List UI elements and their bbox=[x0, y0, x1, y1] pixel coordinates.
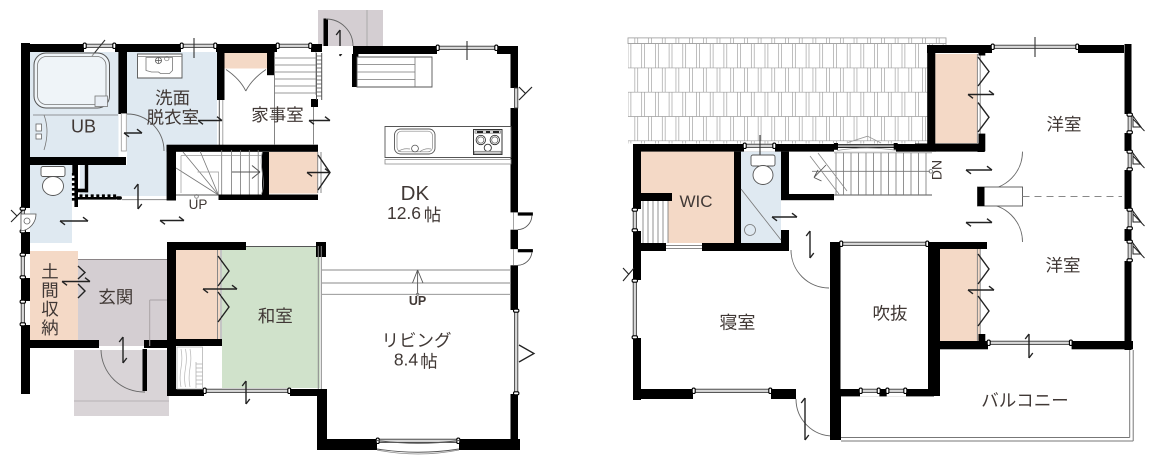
svg-text:UP: UP bbox=[189, 197, 208, 212]
svg-text:DN: DN bbox=[929, 160, 945, 180]
svg-text:8.4: 8.4 bbox=[394, 350, 419, 370]
svg-text:WIC: WIC bbox=[679, 192, 712, 211]
svg-text:UB: UB bbox=[71, 116, 96, 136]
svg-text:DK: DK bbox=[401, 182, 430, 205]
svg-text:12.6: 12.6 bbox=[387, 203, 421, 223]
svg-text:UP: UP bbox=[409, 294, 426, 308]
